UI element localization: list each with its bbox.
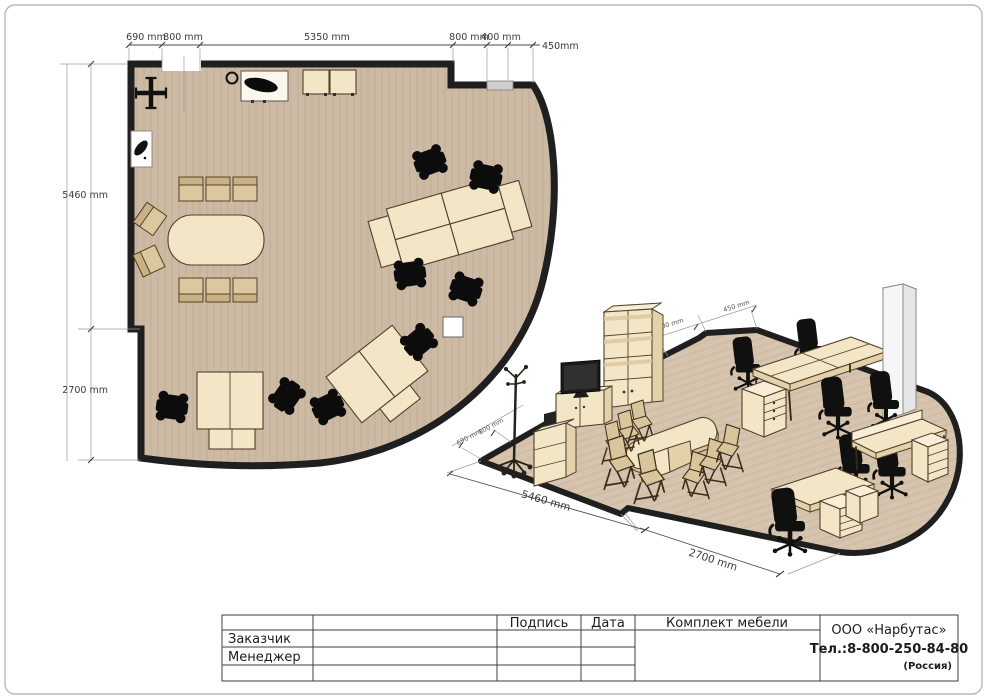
title-row-customer: Заказчик: [228, 632, 291, 647]
door-opening: [162, 57, 201, 71]
bookcase-3d: [604, 303, 663, 408]
dim-label-5460: 5460 mm: [62, 190, 108, 201]
company-name: ООО «Нарбутас»: [831, 623, 946, 638]
meeting-table-2d: [168, 215, 264, 265]
dim-label-690: 690 mm: [126, 32, 166, 43]
title-row-manager: Менеджер: [228, 650, 301, 665]
title-col-furniture-set: Комплект мебели: [666, 616, 788, 631]
dim-label-3d-800b: 800 mm: [477, 416, 505, 436]
title-col-signature: Подпись: [510, 616, 568, 631]
company-phone: Тел.:8-800-250-84-80: [810, 642, 968, 657]
drawing-sheet: 690 mm 800 mm 5350 mm 800 mm 400 mm 450m…: [0, 0, 988, 700]
title-col-date: Дата: [591, 616, 625, 631]
wall-plant-icon: [131, 131, 152, 167]
dim-label-3d-2700: 2700 mm: [687, 547, 739, 574]
pedestal-3d: [742, 381, 786, 437]
furniture-plan-drawing: 690 mm 800 mm 5350 mm 800 mm 400 mm 450m…: [0, 0, 988, 700]
company-country: (Россия): [903, 661, 952, 672]
title-block: Заказчик Менеджер Подпись Дата Комплект …: [222, 615, 968, 681]
pedestal-2d: [443, 317, 463, 337]
dim-label-800a: 800 mm: [163, 32, 203, 43]
floor-plan-2d: 690 mm 800 mm 5350 mm 800 mm 400 mm 450m…: [60, 32, 579, 466]
wall-cabinets: [303, 70, 356, 96]
dim-label-5350: 5350 mm: [304, 32, 350, 43]
dim-label-450: 450mm: [542, 41, 579, 52]
window-segment: [487, 81, 513, 90]
dim-label-2700: 2700 mm: [62, 385, 108, 396]
company-info: ООО «Нарбутас» Тел.:8-800-250-84-80 (Рос…: [810, 623, 968, 672]
dim-label-400: 400 mm: [481, 32, 521, 43]
